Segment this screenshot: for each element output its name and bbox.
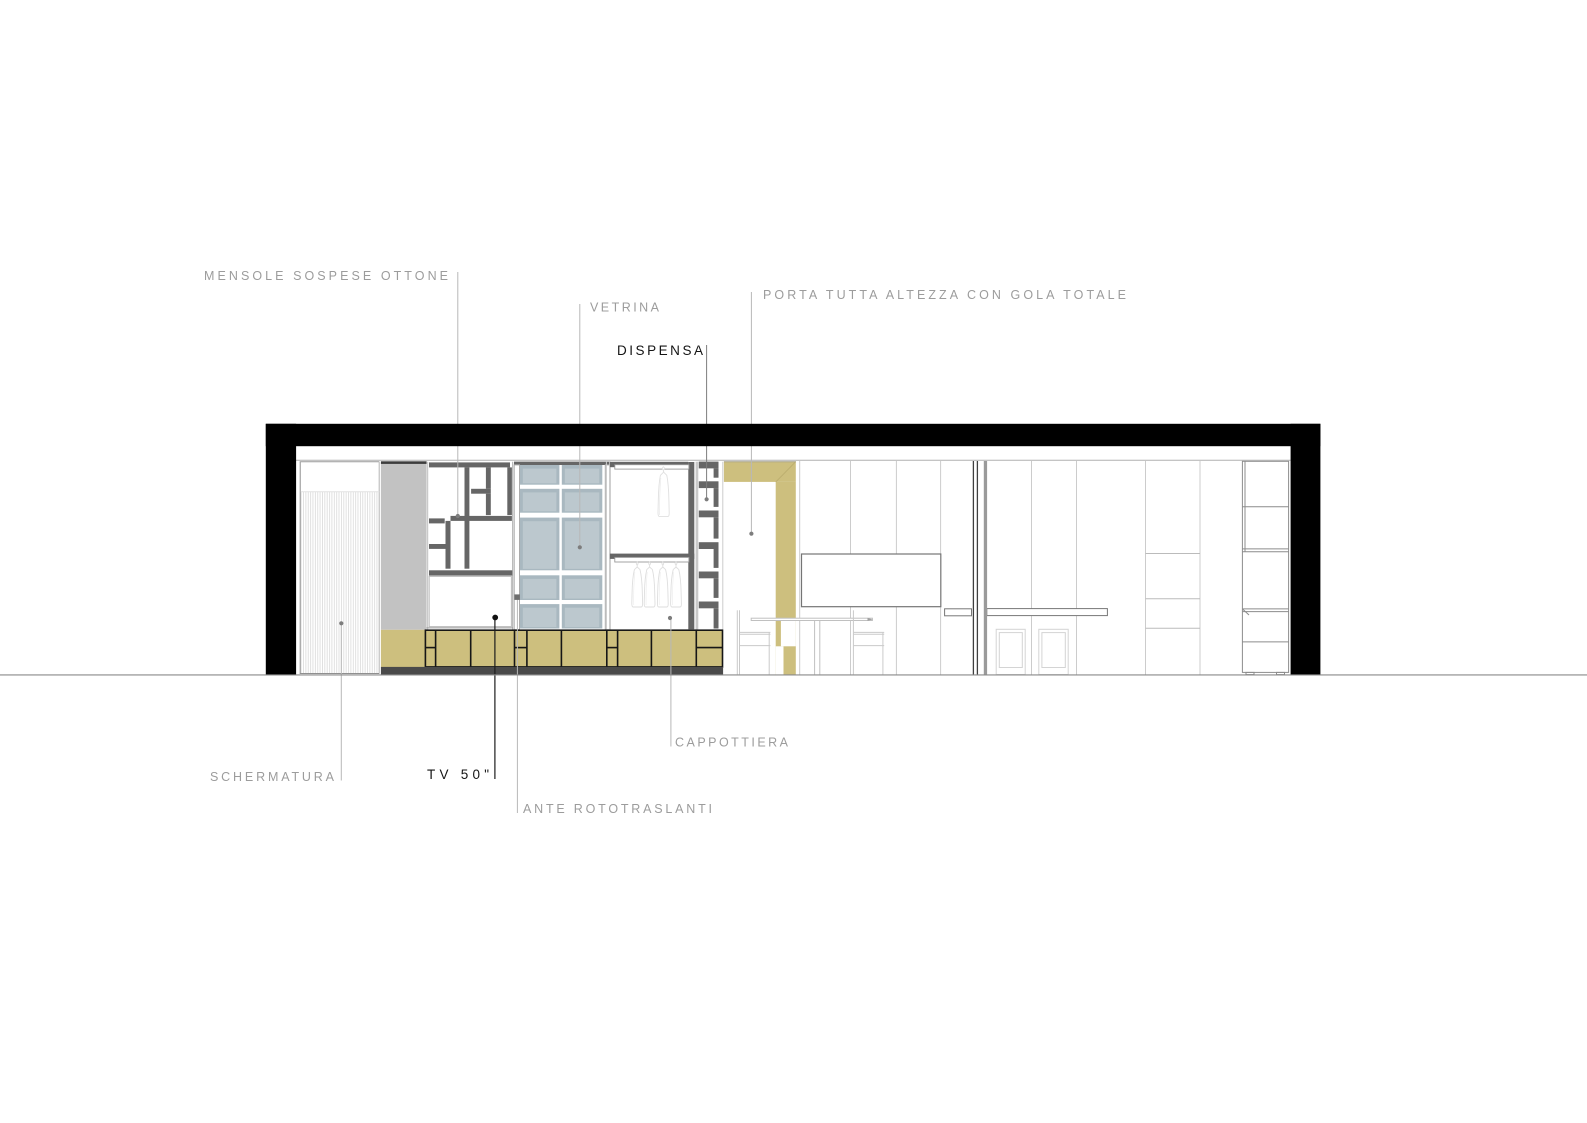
svg-text:DISPENSA: DISPENSA — [617, 343, 705, 358]
svg-text:CAPPOTTIERA: CAPPOTTIERA — [675, 736, 790, 750]
svg-text:ANTE ROTOTRASLANTI: ANTE ROTOTRASLANTI — [523, 802, 714, 816]
svg-text:MENSOLE SOSPESE OTTONE: MENSOLE SOSPESE OTTONE — [204, 269, 450, 283]
svg-text:PORTA TUTTA ALTEZZA CON GOLA T: PORTA TUTTA ALTEZZA CON GOLA TOTALE — [763, 288, 1128, 302]
svg-text:VETRINA: VETRINA — [590, 301, 661, 315]
svg-text:SCHERMATURA: SCHERMATURA — [210, 770, 336, 784]
